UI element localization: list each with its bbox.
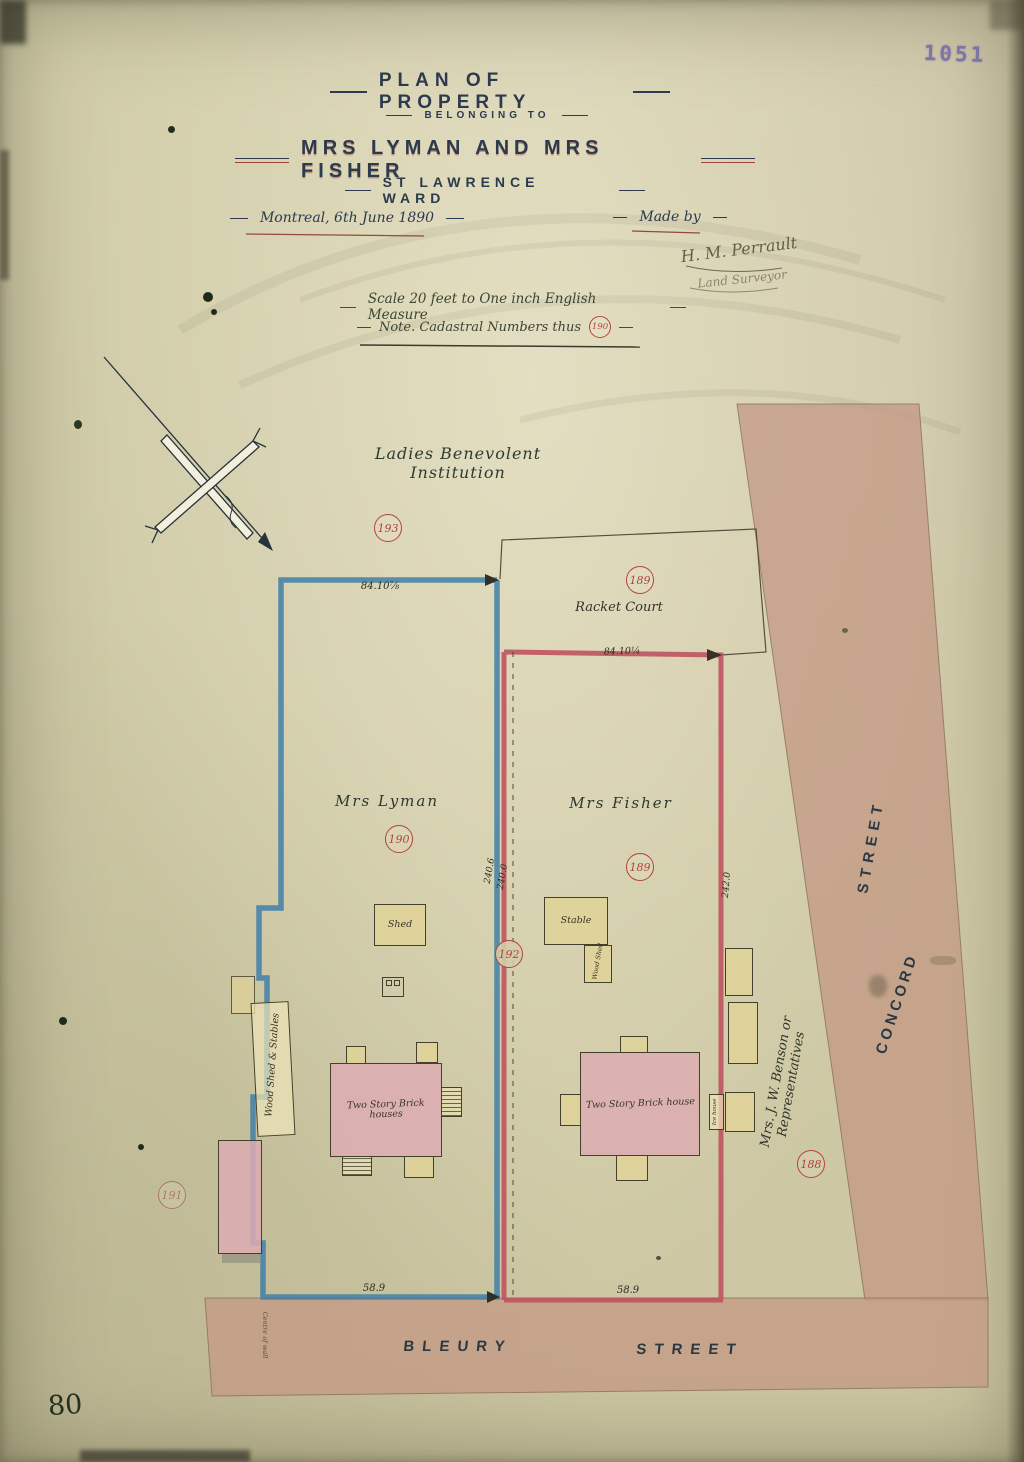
- ink-spot: [203, 292, 213, 302]
- rule-line: [613, 217, 627, 218]
- fisher-house-annex: [620, 1036, 648, 1053]
- rule-line: [386, 115, 412, 116]
- lyman-house-steps: [342, 1156, 372, 1176]
- rule-line: [357, 327, 371, 328]
- fisher-house-annex: [616, 1155, 648, 1181]
- dim-fisher-bleury: 58.9: [602, 1285, 654, 1296]
- outbuilding-mark: [386, 980, 392, 986]
- rule-line: [330, 91, 367, 93]
- dim-lyman-bleury: 58.9: [348, 1283, 400, 1294]
- fisher-lot-boundary-red: [504, 649, 723, 1300]
- survey-plan-sheet: PLAN OF PROPERTY BELONGING TO MRS LYMAN …: [0, 0, 1024, 1462]
- rule-line: [701, 158, 755, 163]
- cadastral-189-lot: 189: [626, 853, 654, 881]
- title-row-ward: ST LAWRENCE WARD: [345, 174, 645, 206]
- rule-line: [345, 190, 371, 191]
- building-shed: Shed: [374, 904, 426, 946]
- racket-court-label: Racket Court: [558, 600, 680, 615]
- fisher-house-annex: [560, 1094, 581, 1126]
- ink-spot: [211, 309, 217, 315]
- ink-spot: [138, 1144, 144, 1150]
- rule-line: [235, 158, 289, 163]
- lyman-house-annex: [416, 1042, 438, 1063]
- cadastral-193: 193: [374, 514, 402, 542]
- lot-fisher-label: Mrs Fisher: [551, 794, 691, 812]
- ink-spot: [842, 628, 848, 633]
- title-row-1: PLAN OF PROPERTY: [330, 70, 670, 114]
- cadastral-191: 191: [158, 1181, 186, 1209]
- building-west-brick-base: [222, 1254, 260, 1263]
- sheet-number: 80: [47, 1389, 83, 1422]
- building-lyman-brick-house-label: Two Story Brick houses: [331, 1098, 442, 1122]
- archive-stamp: 1051: [905, 40, 1006, 67]
- made-by-row: Made by: [600, 209, 740, 225]
- cadastral-190: 190: [385, 825, 413, 853]
- building-fisher-brick-house-label: Two Story Brick house: [585, 1097, 694, 1111]
- rule-line: [230, 218, 248, 219]
- east-boundary-outbuilding: [725, 948, 753, 996]
- lyman-house-annex: [404, 1156, 434, 1178]
- lyman-house-steps: [441, 1087, 462, 1117]
- place-date-label: Montreal, 6th June 1890: [260, 210, 434, 226]
- cadastral-example-circle: 190: [589, 316, 611, 338]
- building-stable-label: Stable: [561, 916, 592, 926]
- building-shed-label: Shed: [388, 920, 412, 930]
- rule-line: [446, 218, 464, 219]
- building-lyman-brick-house: Two Story Brick houses: [330, 1063, 442, 1157]
- made-by-label: Made by: [639, 209, 700, 225]
- rule-line: [562, 115, 588, 116]
- stain: [869, 975, 887, 997]
- building-west-brick: [218, 1140, 262, 1254]
- east-boundary-outbuilding: [728, 1002, 758, 1064]
- ink-spot: [168, 126, 175, 133]
- archive-stamp-number: 1051: [923, 41, 986, 67]
- rule-line: [619, 327, 633, 328]
- east-boundary-outbuilding: [725, 1092, 755, 1132]
- building-fisher-brick-house: Two Story Brick house: [580, 1052, 700, 1156]
- cadastral-192: 192: [495, 940, 523, 968]
- ink-spot: [59, 1017, 67, 1025]
- date-row: Montreal, 6th June 1890: [222, 210, 472, 226]
- bleury-street-word: STREET: [629, 1341, 751, 1358]
- cadastral-note: Note. Cadastral Numbers thus: [379, 320, 581, 335]
- rule-line: [340, 307, 356, 308]
- title-row-2: BELONGING TO: [382, 110, 592, 121]
- belonging-to-label: BELONGING TO: [424, 110, 549, 121]
- rule-line: [713, 217, 727, 218]
- dim-lyman-front: 84.10⅞: [345, 581, 415, 592]
- plan-title: PLAN OF PROPERTY: [379, 70, 621, 114]
- outbuilding-mark: [394, 980, 400, 986]
- cadastral-note-row: Note. Cadastral Numbers thus 190: [330, 316, 660, 338]
- north-arrow: [104, 357, 273, 551]
- bleury-street-label: BLEURY: [397, 1338, 519, 1355]
- rule-line: [670, 307, 686, 308]
- ink-spot: [74, 420, 82, 429]
- lot-lyman-label: Mrs Lyman: [317, 792, 457, 810]
- building-small-outbuilding: [382, 977, 404, 997]
- institution-label: Ladies Benevolent Institution: [327, 444, 589, 482]
- ink-spot: [656, 1256, 661, 1260]
- cadastral-188: 188: [797, 1150, 825, 1178]
- sheet-number-text: 80: [47, 1389, 83, 1422]
- stain: [930, 956, 956, 965]
- building-ice-house-label: Ice house: [713, 1084, 719, 1140]
- bleury-street-band: [205, 1298, 988, 1396]
- centre-of-wall-note: Centre of wall: [261, 1302, 269, 1368]
- rule-line: [633, 91, 670, 93]
- plan-drawing-layer: [0, 0, 1024, 1462]
- lyman-house-annex: [346, 1046, 366, 1064]
- rule-line: [619, 190, 645, 191]
- ward-label: ST LAWRENCE WARD: [383, 174, 608, 206]
- cadastral-189-court: 189: [626, 566, 654, 594]
